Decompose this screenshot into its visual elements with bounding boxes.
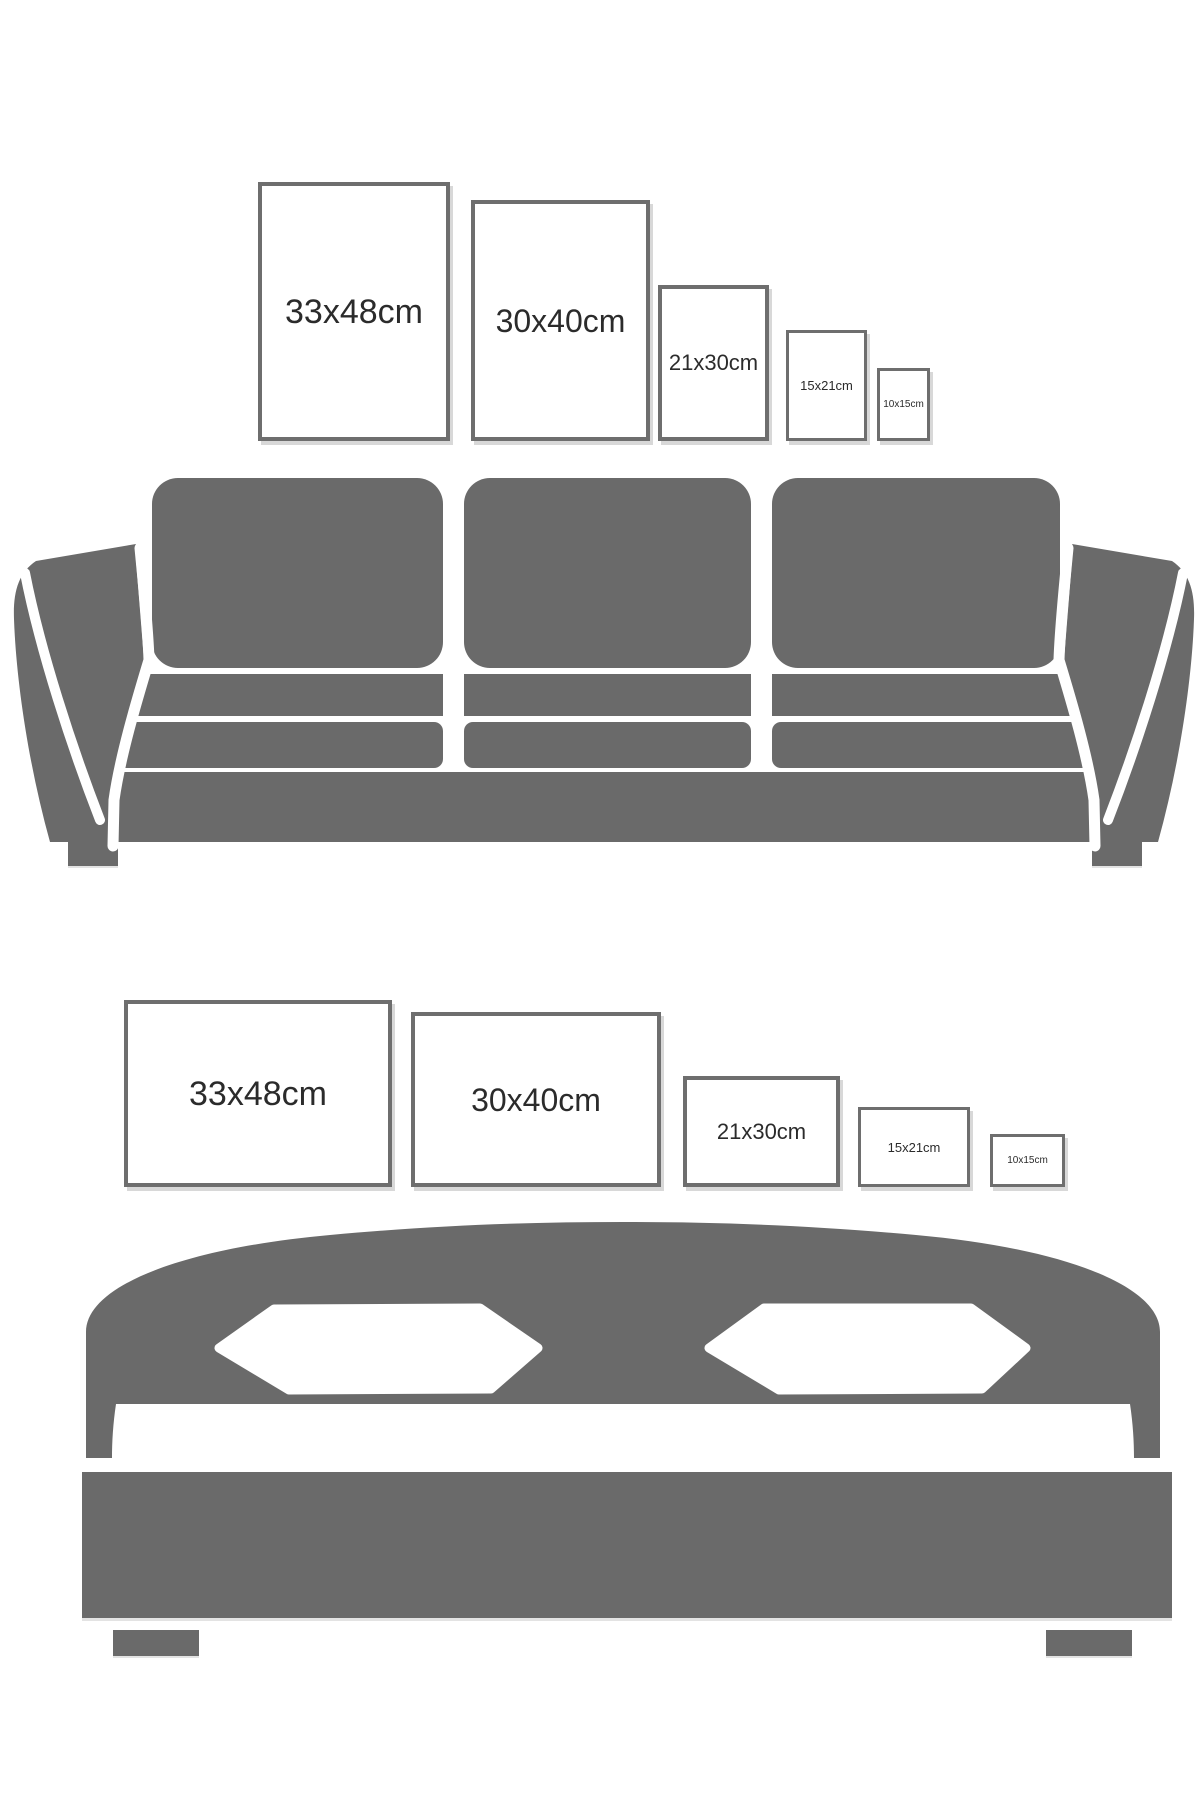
bed-post-left bbox=[86, 1404, 116, 1458]
sofa-front-cushion-center bbox=[464, 722, 751, 768]
bed-leg-left bbox=[113, 1630, 199, 1656]
frame-size-label: 33x48cm bbox=[189, 1077, 327, 1111]
frame-size-label: 21x30cm bbox=[669, 352, 758, 374]
frame-33x48-portrait: 33x48cm bbox=[258, 182, 450, 441]
sofa-seat-deck bbox=[124, 674, 1088, 716]
frame-size-label: 10x15cm bbox=[883, 400, 924, 410]
bed-leg-right-shadow bbox=[1046, 1656, 1132, 1658]
sofa-seat-gap-left bbox=[443, 670, 464, 720]
poster-size-guide: 33x48cm 30x40cm 21x30cm 15x21cm 10x15cm bbox=[0, 0, 1200, 1800]
frame-size-label: 21x30cm bbox=[717, 1121, 806, 1143]
sofa-icon bbox=[0, 430, 1200, 870]
frame-size-label: 15x21cm bbox=[800, 379, 853, 392]
sofa-seat-gap-right bbox=[751, 670, 772, 720]
bed-base bbox=[82, 1472, 1172, 1618]
bed-pillow-right bbox=[709, 1308, 1026, 1390]
frame-size-label: 30x40cm bbox=[471, 1084, 601, 1116]
sofa-leg-left-shadow bbox=[68, 866, 118, 868]
frame-size-label: 33x48cm bbox=[285, 295, 423, 329]
sofa-base bbox=[107, 772, 1101, 842]
frame-size-label: 15x21cm bbox=[888, 1141, 941, 1154]
frame-size-label: 10x15cm bbox=[1007, 1156, 1048, 1166]
sofa-back-cushion-center bbox=[464, 478, 751, 668]
bed-post-right bbox=[1130, 1404, 1160, 1458]
bed-pillow-left bbox=[219, 1308, 538, 1390]
bed-leg-right bbox=[1046, 1630, 1132, 1656]
bed-base-shadow bbox=[82, 1618, 1172, 1621]
frame-30x40-landscape: 30x40cm bbox=[411, 1012, 661, 1187]
sofa-leg-right-shadow bbox=[1092, 866, 1142, 868]
bed-leg-left-shadow bbox=[113, 1656, 199, 1658]
sofa-front-cushion-right bbox=[772, 722, 1098, 768]
frame-15x21-portrait: 15x21cm bbox=[786, 330, 867, 441]
sofa-back-cushion-right bbox=[772, 478, 1060, 668]
sofa-front-cushion-left bbox=[116, 722, 443, 768]
frame-21x30-portrait: 21x30cm bbox=[658, 285, 769, 441]
frame-30x40-portrait: 30x40cm bbox=[471, 200, 650, 441]
frame-33x48-landscape: 33x48cm bbox=[124, 1000, 392, 1187]
frame-size-label: 30x40cm bbox=[496, 305, 626, 337]
sofa-back-cushion-left bbox=[152, 478, 443, 668]
bed-icon bbox=[0, 1170, 1200, 1670]
